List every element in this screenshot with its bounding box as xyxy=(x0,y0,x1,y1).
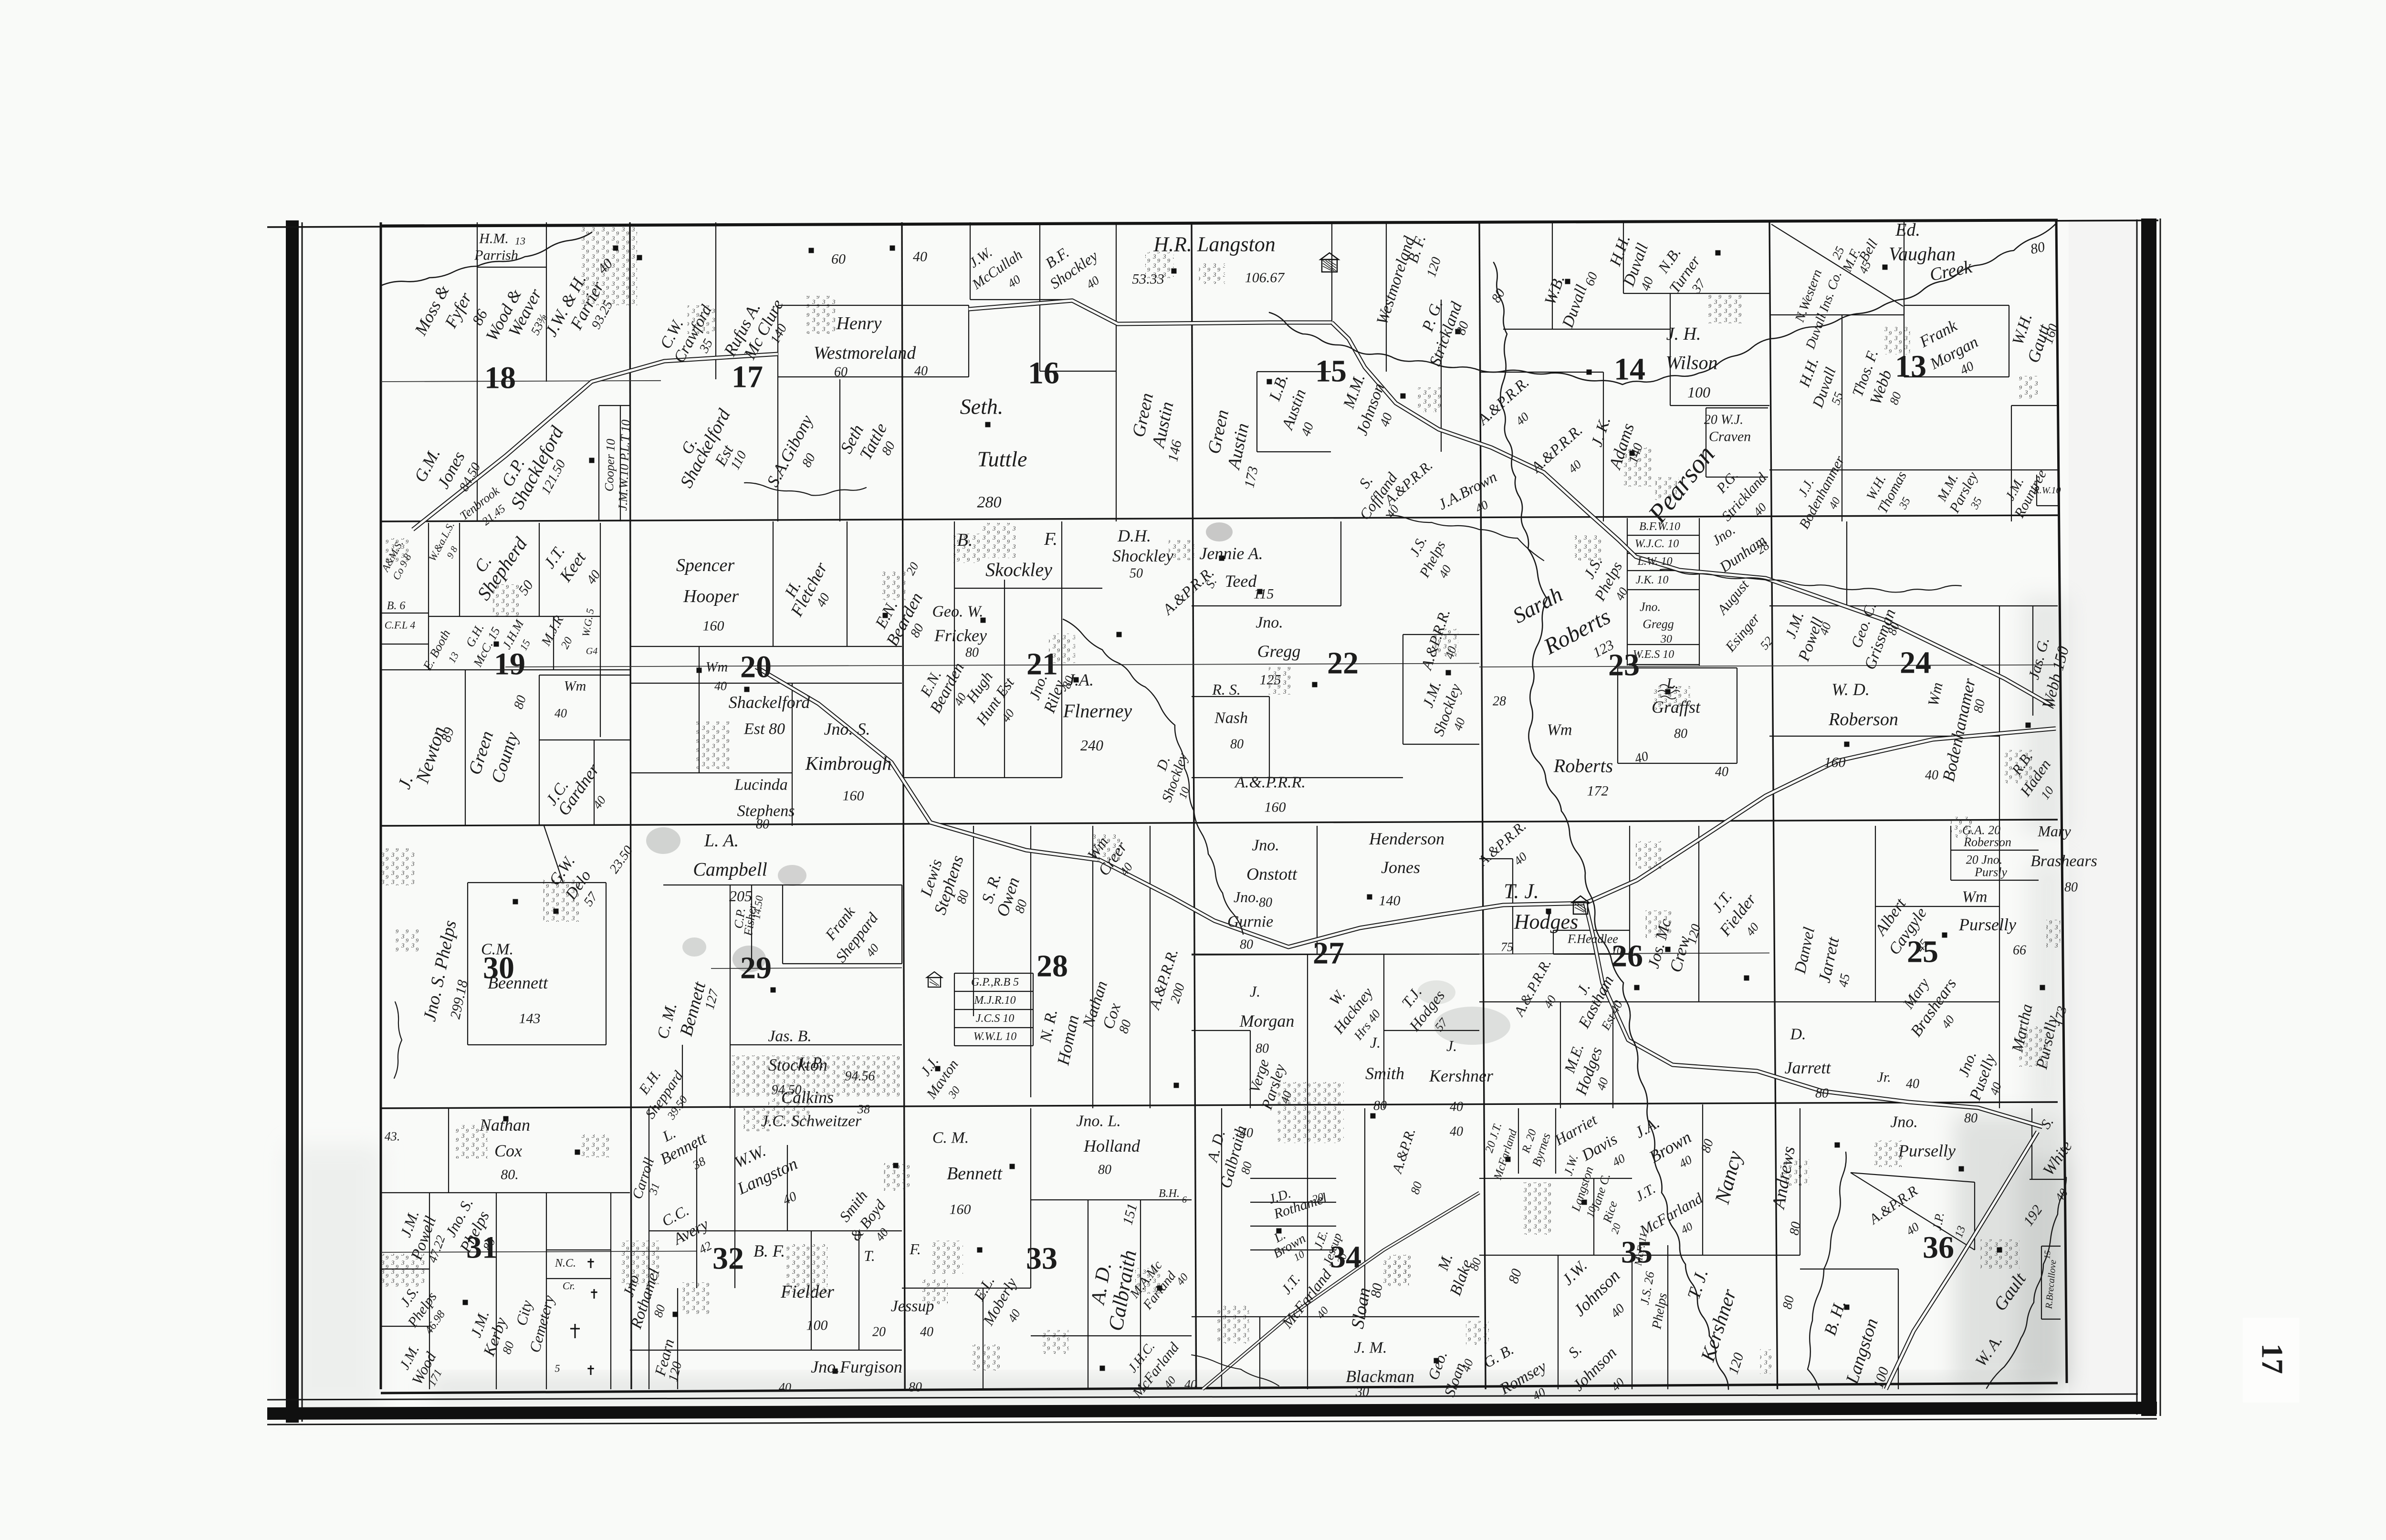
svg-text:Holland: Holland xyxy=(1083,1136,1141,1155)
svg-text:100: 100 xyxy=(1687,384,1710,401)
svg-text:Craven: Craven xyxy=(1709,429,1751,445)
svg-text:80: 80 xyxy=(756,817,769,832)
svg-text:D.H.: D.H. xyxy=(1117,526,1151,545)
svg-text:Henry: Henry xyxy=(836,313,882,333)
svg-text:32: 32 xyxy=(712,1241,744,1276)
svg-text:J.A.: J.A. xyxy=(1067,670,1094,689)
svg-text:W.W.L 10: W.W.L 10 xyxy=(973,1030,1017,1043)
svg-text:B.H.: B.H. xyxy=(1159,1187,1180,1200)
svg-text:D.: D. xyxy=(1789,1026,1806,1043)
svg-text:Cr.: Cr. xyxy=(563,1280,575,1292)
svg-text:Jno.: Jno. xyxy=(1890,1113,1918,1131)
svg-text:R. S.: R. S. xyxy=(1212,681,1241,698)
svg-text:80: 80 xyxy=(965,645,979,660)
svg-text:15: 15 xyxy=(1315,354,1347,389)
svg-text:6: 6 xyxy=(1182,1195,1187,1205)
svg-text:Kershner: Kershner xyxy=(1429,1066,1494,1085)
svg-text:40: 40 xyxy=(779,1381,791,1394)
svg-text:43.: 43. xyxy=(385,1130,400,1144)
svg-text:Seth.: Seth. xyxy=(960,395,1004,419)
svg-text:160: 160 xyxy=(1824,755,1846,770)
svg-text:80.: 80. xyxy=(501,1167,519,1183)
svg-text:40: 40 xyxy=(714,679,727,693)
svg-text:Jno.: Jno. xyxy=(1252,837,1279,854)
svg-text:205: 205 xyxy=(729,887,752,905)
svg-text:80: 80 xyxy=(1256,1041,1269,1056)
svg-text:19: 19 xyxy=(494,647,525,682)
svg-text:60: 60 xyxy=(831,251,846,267)
svg-text:Est 80: Est 80 xyxy=(743,720,785,738)
svg-text:143: 143 xyxy=(519,1011,541,1027)
svg-text:40: 40 xyxy=(914,364,928,379)
svg-text:80: 80 xyxy=(1815,1086,1829,1101)
svg-text:280: 280 xyxy=(977,494,1002,511)
svg-text:Gregg: Gregg xyxy=(1257,642,1301,661)
svg-text:80: 80 xyxy=(1787,1221,1803,1237)
svg-text:15: 15 xyxy=(2042,1250,2052,1259)
svg-text:Calkins: Calkins xyxy=(781,1088,834,1107)
svg-text:Westmoreland: Westmoreland xyxy=(814,343,917,363)
svg-text:5: 5 xyxy=(555,1363,560,1374)
svg-text:Hodges: Hodges xyxy=(1514,910,1578,934)
svg-text:13: 13 xyxy=(515,235,525,247)
svg-text:80: 80 xyxy=(1240,937,1253,952)
svg-text:H.M.: H.M. xyxy=(479,231,509,247)
svg-text:240: 240 xyxy=(1080,737,1103,754)
svg-text:40: 40 xyxy=(1715,765,1728,780)
svg-text:Jno.: Jno. xyxy=(1234,888,1259,905)
svg-text:Smith: Smith xyxy=(1365,1064,1404,1083)
svg-text:Shackelford: Shackelford xyxy=(729,693,811,712)
svg-text:J.C. Schweitzer: J.C. Schweitzer xyxy=(761,1113,862,1130)
svg-text:B. F.: B. F. xyxy=(753,1241,785,1260)
svg-text:172: 172 xyxy=(1587,783,1609,799)
svg-text:30: 30 xyxy=(1355,1385,1369,1400)
svg-text:R.W.10: R.W.10 xyxy=(2033,485,2061,496)
svg-text:80: 80 xyxy=(909,1380,922,1395)
svg-text:Jessup: Jessup xyxy=(891,1298,934,1315)
svg-text:40: 40 xyxy=(555,707,567,720)
svg-text:B.F.W.10: B.F.W.10 xyxy=(1639,520,1680,533)
svg-text:125: 125 xyxy=(1260,672,1281,688)
svg-text:Roberts: Roberts xyxy=(1553,755,1613,777)
svg-text:160: 160 xyxy=(950,1202,971,1217)
svg-text:Hooper: Hooper xyxy=(683,586,739,606)
svg-text:28: 28 xyxy=(1036,949,1068,984)
svg-text:Jno. S.: Jno. S. xyxy=(824,719,870,739)
svg-text:80: 80 xyxy=(1098,1163,1111,1177)
svg-text:Pursly: Pursly xyxy=(1974,865,2007,879)
svg-text:Nathan: Nathan xyxy=(479,1115,530,1134)
svg-text:C. M.: C. M. xyxy=(932,1129,969,1147)
svg-text:Purselly: Purselly xyxy=(1958,915,2016,934)
svg-text:20: 20 xyxy=(872,1325,886,1340)
svg-text:Roberson: Roberson xyxy=(1963,835,2011,849)
svg-text:J.: J. xyxy=(1250,983,1260,1000)
svg-text:53.33: 53.33 xyxy=(1132,271,1164,287)
svg-text:Jas. B.: Jas. B. xyxy=(768,1028,812,1045)
svg-text:Roberson: Roberson xyxy=(1828,709,1898,729)
svg-text:Wm: Wm xyxy=(564,678,586,694)
svg-text:Jno.Furgison: Jno.Furgison xyxy=(811,1357,902,1376)
svg-text:28: 28 xyxy=(1493,694,1506,709)
svg-text:L.W. 10: L.W. 10 xyxy=(1637,555,1672,568)
svg-text:Vaughan: Vaughan xyxy=(1889,243,1956,265)
svg-text:14: 14 xyxy=(1614,352,1645,387)
svg-text:Fielder: Fielder xyxy=(780,1282,834,1302)
svg-text:94.56: 94.56 xyxy=(845,1069,875,1084)
svg-text:Teed: Teed xyxy=(1225,572,1257,591)
svg-text:40: 40 xyxy=(1184,1378,1197,1392)
svg-text:80: 80 xyxy=(1674,727,1687,741)
svg-text:L.: L. xyxy=(1666,675,1679,692)
svg-text:Kimbrough: Kimbrough xyxy=(805,753,892,774)
svg-text:Mary: Mary xyxy=(2037,822,2071,840)
svg-text:Wilson: Wilson xyxy=(1666,352,1718,374)
svg-text:40: 40 xyxy=(1906,1077,1919,1092)
svg-text:Campbell: Campbell xyxy=(693,859,767,880)
svg-text:G.P.,R.B 5: G.P.,R.B 5 xyxy=(971,976,1019,989)
svg-text:36: 36 xyxy=(1923,1230,1954,1265)
svg-text:80: 80 xyxy=(1373,1099,1387,1113)
svg-text:40: 40 xyxy=(1450,1124,1463,1139)
svg-text:Cox: Cox xyxy=(494,1141,522,1160)
svg-text:80: 80 xyxy=(1259,895,1272,910)
svg-text:38: 38 xyxy=(857,1103,870,1116)
svg-text:Flnerney: Flnerney xyxy=(1063,700,1132,722)
svg-text:Lucinda: Lucinda xyxy=(734,776,787,794)
svg-text:16: 16 xyxy=(1028,356,1059,391)
svg-text:Tuttle: Tuttle xyxy=(977,447,1027,471)
svg-text:100: 100 xyxy=(806,1318,828,1333)
svg-text:40: 40 xyxy=(1450,1100,1463,1114)
svg-text:J. P.: J. P. xyxy=(797,1054,824,1072)
svg-text:Onstott: Onstott xyxy=(1246,864,1298,884)
svg-text:B. 6: B. 6 xyxy=(387,600,406,612)
svg-text:80: 80 xyxy=(1368,1282,1386,1299)
svg-text:27: 27 xyxy=(1313,936,1344,971)
svg-text:T. J.: T. J. xyxy=(1504,880,1539,903)
svg-text:40: 40 xyxy=(1925,768,1938,783)
svg-text:Spencer: Spencer xyxy=(676,555,735,575)
svg-text:33: 33 xyxy=(1026,1241,1057,1276)
svg-text:Blackman: Blackman xyxy=(1346,1367,1414,1386)
svg-text:J.K. 10: J.K. 10 xyxy=(1636,574,1669,586)
svg-text:29: 29 xyxy=(740,951,772,986)
svg-text:66: 66 xyxy=(2013,943,2026,958)
svg-text:L. A.: L. A. xyxy=(704,831,739,851)
svg-text:T.: T. xyxy=(864,1247,875,1264)
svg-text:N.C.: N.C. xyxy=(555,1257,576,1269)
svg-text:Henderson: Henderson xyxy=(1369,829,1444,848)
svg-text:Jno.: Jno. xyxy=(1256,614,1283,632)
svg-text:20: 20 xyxy=(740,650,772,685)
svg-text:J. M.: J. M. xyxy=(1354,1339,1387,1357)
svg-text:40: 40 xyxy=(1240,1126,1253,1141)
svg-text:Jr.: Jr. xyxy=(1877,1070,1891,1085)
svg-text:Bennett: Bennett xyxy=(947,1164,1003,1184)
svg-text:22: 22 xyxy=(1327,646,1359,681)
svg-text:W.E.S 10: W.E.S 10 xyxy=(1633,648,1674,661)
svg-text:Cooper 10: Cooper 10 xyxy=(602,438,618,491)
svg-text:F.: F. xyxy=(909,1240,921,1258)
svg-text:W. D.: W. D. xyxy=(1831,680,1870,699)
svg-text:C.M.: C.M. xyxy=(481,941,513,958)
svg-text:J.: J. xyxy=(1446,1037,1457,1054)
svg-text:Morgan: Morgan xyxy=(1239,1011,1295,1030)
svg-text:H.R. Langston: H.R. Langston xyxy=(1153,233,1275,256)
svg-text:18: 18 xyxy=(484,361,516,395)
svg-text:Brashears: Brashears xyxy=(2030,853,2097,870)
svg-text:M.J.R.10: M.J.R.10 xyxy=(973,994,1015,1007)
svg-text:Purselly: Purselly xyxy=(1898,1141,1956,1160)
svg-text:20 W.J.: 20 W.J. xyxy=(1704,413,1743,427)
svg-text:W.J.C. 10: W.J.C. 10 xyxy=(1635,538,1679,550)
svg-text:80: 80 xyxy=(1964,1111,1978,1126)
svg-text:Shockley: Shockley xyxy=(1112,546,1173,565)
svg-text:Jarrett: Jarrett xyxy=(1785,1058,1831,1077)
svg-text:30: 30 xyxy=(1660,633,1672,645)
svg-text:10: 10 xyxy=(1612,945,1622,957)
svg-text:75: 75 xyxy=(1501,940,1513,954)
svg-text:80: 80 xyxy=(2064,880,2078,895)
svg-text:Jones: Jones xyxy=(1381,858,1420,877)
svg-text:17: 17 xyxy=(732,360,763,395)
svg-text:Jno.: Jno. xyxy=(1640,600,1661,614)
svg-text:Parrish: Parrish xyxy=(474,248,518,263)
svg-text:24: 24 xyxy=(1900,645,1931,680)
svg-text:Jennie A.: Jennie A. xyxy=(1199,544,1263,563)
svg-text:160: 160 xyxy=(843,788,864,804)
svg-text:J. H.: J. H. xyxy=(1666,324,1701,344)
svg-text:40: 40 xyxy=(920,1325,933,1340)
svg-text:60: 60 xyxy=(834,365,848,380)
svg-text:J.: J. xyxy=(1370,1034,1381,1051)
svg-text:Nash: Nash xyxy=(1214,709,1248,727)
svg-text:Gregg: Gregg xyxy=(1643,617,1674,631)
svg-text:Beennett: Beennett xyxy=(488,973,548,992)
svg-text:B.: B. xyxy=(957,530,973,550)
svg-text:17: 17 xyxy=(2256,1343,2290,1374)
svg-text:G4: G4 xyxy=(586,646,597,656)
svg-text:160: 160 xyxy=(1265,800,1286,815)
svg-text:Gurnie: Gurnie xyxy=(1227,913,1273,931)
svg-text:Frickey: Frickey xyxy=(934,626,987,645)
svg-text:106.67: 106.67 xyxy=(1245,270,1286,286)
svg-text:Ed.: Ed. xyxy=(1895,220,1920,240)
svg-text:115: 115 xyxy=(1254,586,1274,602)
svg-text:80: 80 xyxy=(1230,737,1244,752)
svg-text:50: 50 xyxy=(1130,566,1143,581)
svg-text:C.F.L 4: C.F.L 4 xyxy=(385,619,416,631)
svg-text:Graffst: Graffst xyxy=(1652,697,1701,717)
svg-text:J.C.S 10: J.C.S 10 xyxy=(976,1012,1015,1025)
svg-text:F.: F. xyxy=(1044,529,1057,549)
svg-text:Wm: Wm xyxy=(706,659,728,675)
svg-text:Wm: Wm xyxy=(1962,888,1988,906)
svg-text:13: 13 xyxy=(1895,349,1926,384)
svg-text:Jno. L.: Jno. L. xyxy=(1076,1113,1121,1130)
svg-text:A.&.P.R.R.: A.&.P.R.R. xyxy=(1234,774,1306,791)
svg-text:Wm: Wm xyxy=(1547,721,1572,739)
svg-text:160: 160 xyxy=(703,618,724,634)
svg-text:40: 40 xyxy=(913,249,927,265)
svg-text:20 Jno.: 20 Jno. xyxy=(1966,853,2003,867)
svg-text:140: 140 xyxy=(1379,893,1401,909)
svg-text:Geo. W.: Geo. W. xyxy=(932,603,983,621)
svg-text:F.Headlee: F.Headlee xyxy=(1567,932,1618,946)
svg-text:Skockley: Skockley xyxy=(985,559,1052,581)
